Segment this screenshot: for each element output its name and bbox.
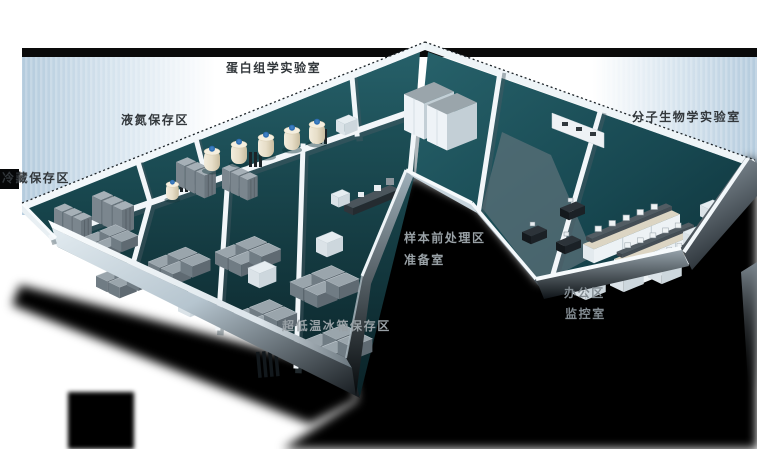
label-proteomics-lab: 蛋白组学实验室: [226, 61, 321, 75]
label-cold-storage: 冷藏保存区: [2, 171, 70, 185]
label-preparation-room: 准备室: [404, 253, 445, 267]
label-liquid-nitrogen-storage: 液氮保存区: [121, 113, 189, 127]
lab-floorplan-scene: 蛋白组学实验室 液氮保存区 冷藏保存区 分子生物学实验室 样本前处理区 准备室 …: [0, 0, 757, 449]
shadow-tab: [68, 392, 134, 449]
label-sample-pretreatment: 样本前处理区: [404, 231, 486, 245]
label-ult-freezer-storage: 超低温冰箱保存区: [282, 319, 391, 333]
label-office-area: 办公区: [564, 286, 605, 300]
label-monitoring-room: 监控室: [565, 307, 606, 321]
building-3d-render: [0, 0, 757, 449]
label-molecular-biology-lab: 分子生物学实验室: [632, 110, 741, 124]
